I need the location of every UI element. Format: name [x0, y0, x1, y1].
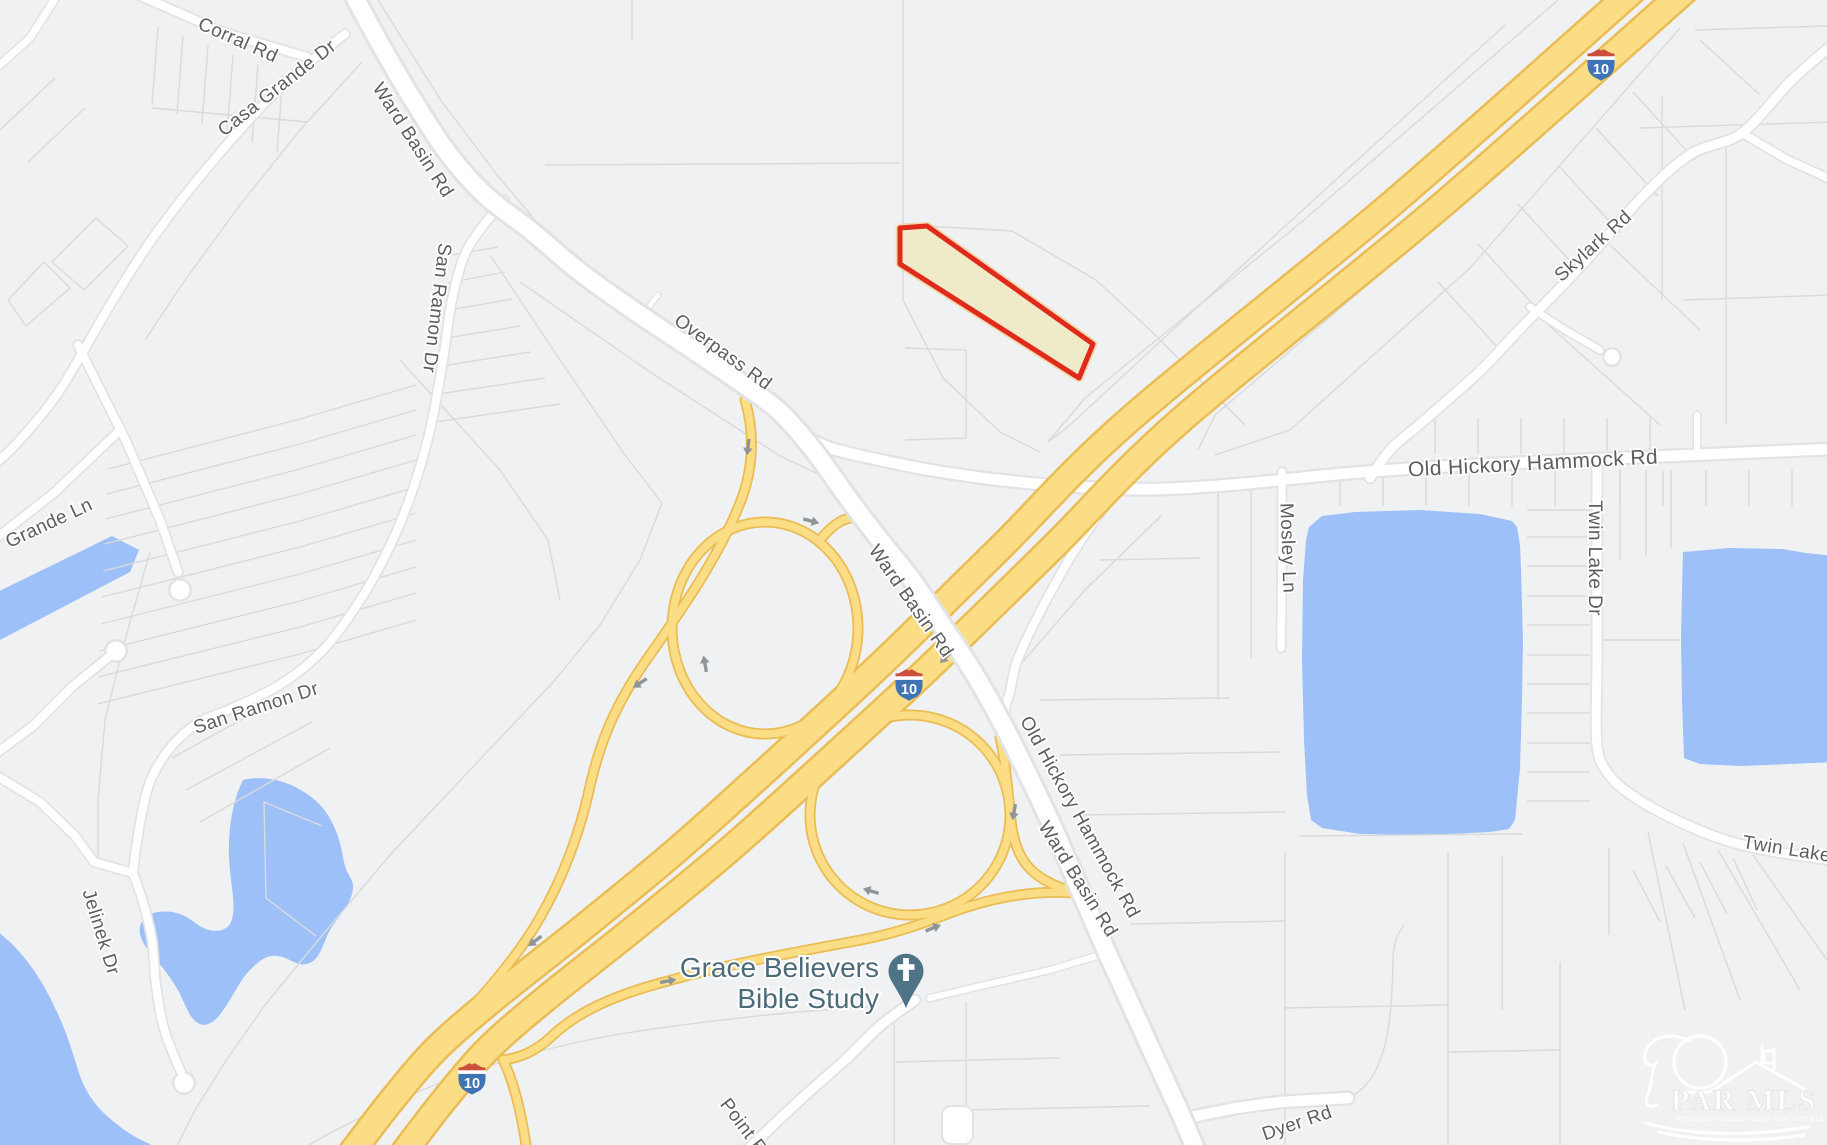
svg-text:Grace Believers: Grace Believers	[680, 952, 879, 983]
svg-text:Mosley Ln: Mosley Ln	[1275, 503, 1299, 594]
svg-text:10: 10	[464, 1076, 480, 1092]
svg-text:Twin Lake Dr: Twin Lake Dr	[1584, 500, 1605, 616]
svg-text:PENSACOLA ASSOCIATION OF REALT: PENSACOLA ASSOCIATION OF REALTORS MLS	[1676, 1116, 1824, 1123]
svg-text:Bible Study: Bible Study	[737, 983, 879, 1014]
svg-text:10: 10	[1593, 62, 1609, 78]
svg-text:PAR MLS: PAR MLS	[1671, 1084, 1817, 1117]
svg-text:10: 10	[901, 682, 917, 698]
